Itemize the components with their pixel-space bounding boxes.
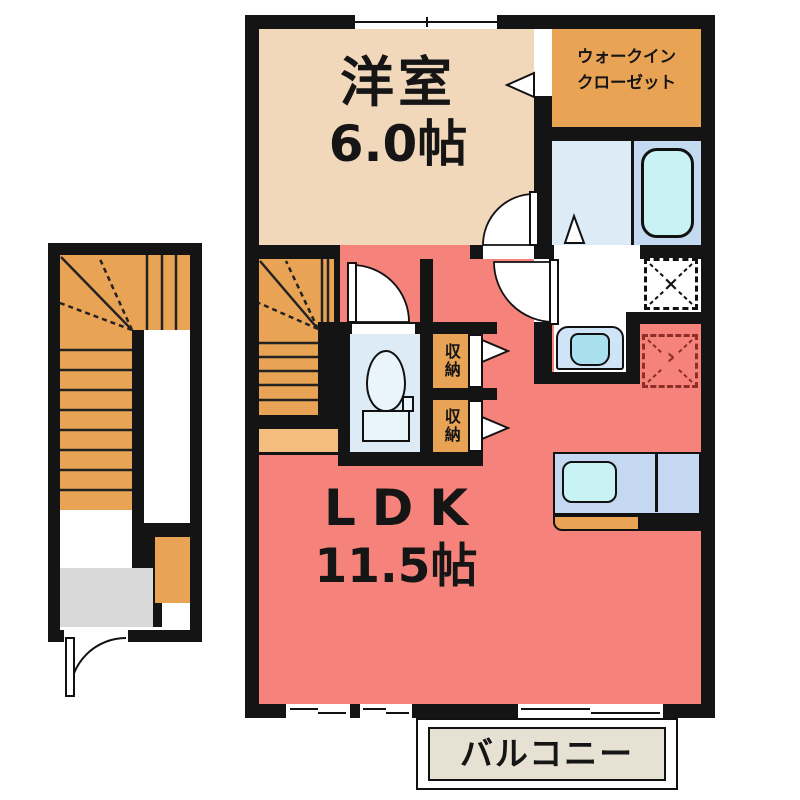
external-stair-cross-wall (132, 523, 190, 537)
entry-genkan-floor (60, 568, 153, 627)
room-ldk-size: 11.5帖 (262, 540, 530, 594)
internal-stair-right-wall (318, 322, 340, 415)
wall-ldk-north-b (470, 245, 483, 259)
bathroom-entry-opening (554, 245, 640, 259)
bathroom-divider (631, 141, 634, 245)
wall-western-wic (534, 96, 552, 245)
room-wic-label: ウォークイン クローゼット (552, 44, 701, 114)
washroom-door-opening (534, 259, 554, 322)
kitchen-counter-edge (553, 515, 640, 531)
kitchen-sink-icon (562, 461, 617, 503)
internal-stair-top-treads (318, 259, 334, 322)
floor-plan: × › (0, 0, 800, 800)
internal-stair-winder (259, 259, 318, 329)
entry-porch-step (155, 537, 190, 603)
room-wic-line1: ウォークイン (552, 44, 701, 70)
western-door-opening (483, 245, 534, 259)
entry-door-opening (64, 630, 128, 642)
washing-machine-mark: × (656, 269, 686, 299)
toilet-right-wall (420, 259, 433, 466)
window-icon-bottom-1 (286, 704, 350, 718)
room-ldk-name: LDK (278, 480, 530, 538)
storage-upper-door (468, 334, 483, 388)
toilet-storage-bottom-wall (338, 452, 483, 466)
bathroom-floor (552, 141, 633, 245)
wall-ldk-north-a (259, 245, 340, 259)
entry-door-arc-icon (66, 638, 126, 696)
storage-upper-label: 収納 (433, 334, 468, 388)
room-western-label: 洋室 6.0帖 (262, 52, 534, 202)
wall-under-vanity (534, 372, 640, 384)
kitchen-back-wall (640, 515, 701, 531)
wic-doorway (534, 29, 552, 96)
internal-stair-bottom-wall (245, 415, 338, 429)
external-stair-top-treads (132, 255, 190, 330)
toilet-door-threshold (352, 324, 415, 334)
entry-wall-chunk (132, 537, 155, 568)
storage-divider-wall (433, 388, 497, 400)
storage-lower-door (468, 400, 483, 452)
balcony-label: バルコニー (428, 727, 666, 781)
window-icon-bottom-2 (360, 704, 412, 718)
window-icon-top (355, 15, 497, 29)
external-stair-run (60, 330, 132, 510)
refrigerator-mark: › (656, 344, 686, 374)
room-wic-line2: クローゼット (552, 70, 701, 96)
internal-stair-landing (259, 429, 338, 455)
toilet-icon (366, 350, 406, 412)
storage-lower-label: 収納 (433, 400, 468, 452)
wall-wic-bathroom (552, 127, 701, 141)
external-stair-winder (60, 255, 132, 330)
room-western-size: 6.0帖 (262, 116, 534, 174)
toilet-handle (402, 396, 414, 412)
internal-stair-run (259, 329, 318, 415)
hall-passage (340, 245, 470, 259)
internal-stair-side-wall (334, 259, 340, 322)
room-western-name: 洋室 (262, 52, 534, 114)
wall-ldk-north-c (534, 245, 554, 259)
sliding-door-icon-balcony (518, 704, 663, 718)
room-ldk-label: LDK 11.5帖 (262, 480, 530, 620)
toilet-tank (362, 410, 410, 442)
bathtub-icon (641, 148, 694, 238)
toilet-left-wall (338, 322, 350, 466)
wall-ldk-north-d (640, 245, 701, 259)
external-stair-inner-wall (132, 330, 144, 537)
washbasin-bowl (570, 333, 610, 366)
kitchen-counter-divider (655, 454, 658, 512)
